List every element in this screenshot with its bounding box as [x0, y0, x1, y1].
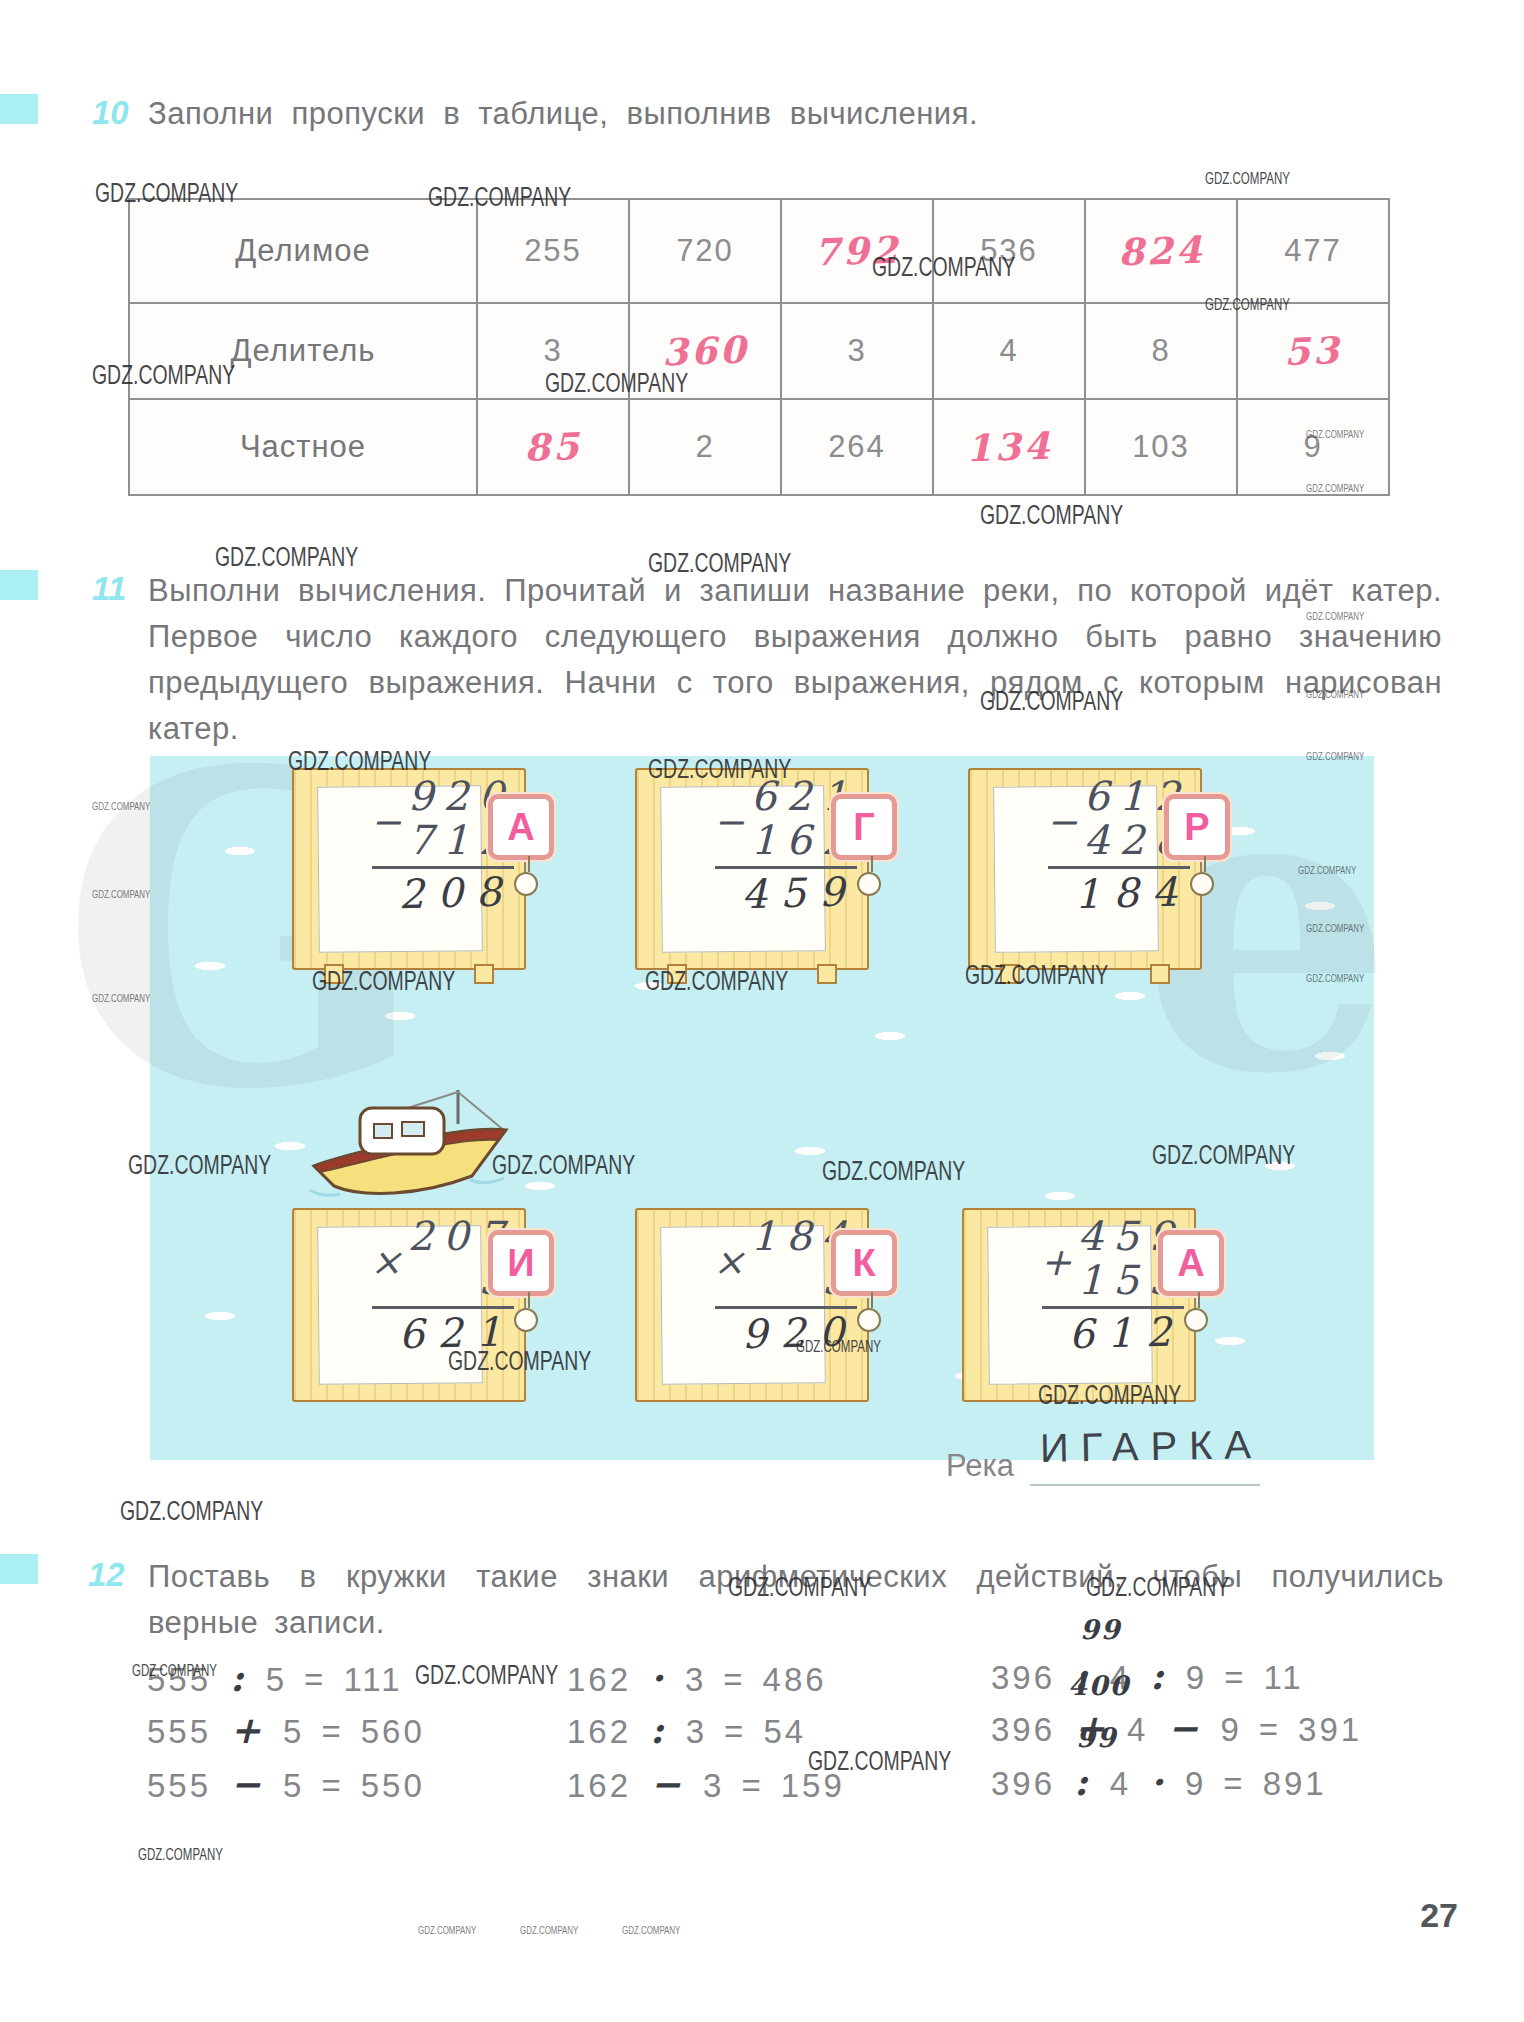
calc-card: × 184 5 920 К — [635, 1208, 869, 1402]
gdz-watermark: GDZ.COMPANY — [965, 960, 1108, 991]
gdz-watermark: GDZ.COMPANY — [120, 1496, 263, 1527]
gdz-watermark: GDZ.COMPANY — [92, 888, 150, 900]
gdz-watermark: GDZ.COMPANY — [428, 182, 571, 213]
table-cell-handwritten: 85 — [476, 398, 628, 494]
expression-row: 555+5=560 — [140, 1708, 432, 1752]
handwritten-result: 459 — [714, 869, 857, 917]
gdz-watermark: GDZ.COMPANY — [1306, 972, 1364, 984]
operator: + — [1040, 1240, 1072, 1284]
letter-tab: Г — [831, 794, 897, 860]
card-leg — [817, 964, 837, 984]
result: 54 — [763, 1713, 806, 1750]
letter-tab: Р — [1164, 794, 1230, 860]
river-illustration: G e − 920 712 208 А − 621 162 — [150, 756, 1374, 1460]
operand: 3 — [685, 1661, 706, 1698]
tab-string — [1204, 856, 1206, 872]
tab-knob — [1184, 1308, 1208, 1332]
calc-card: + 459 153 612 А — [962, 1208, 1196, 1402]
gdz-watermark: GDZ.COMPANY — [1306, 688, 1364, 700]
expression-row: 555−5=550 — [140, 1762, 432, 1806]
equals-sign: = — [321, 1767, 343, 1804]
problem-10-number: 10 — [92, 94, 129, 132]
table-cell-handwritten: 792 — [780, 200, 932, 302]
equals-sign: = — [1259, 1711, 1281, 1748]
table-cell: 720 — [628, 200, 780, 302]
gdz-watermark: GDZ.COMPANY — [622, 1924, 680, 1936]
equals-sign: = — [1223, 1765, 1245, 1802]
tab-string — [528, 856, 530, 872]
equals-sign: = — [723, 1661, 745, 1698]
operand: 9 — [1220, 1711, 1241, 1748]
gdz-watermark: GDZ.COMPANY — [1306, 750, 1364, 762]
gdz-watermark: GDZ.COMPANY — [1306, 482, 1364, 494]
river-label: Река — [946, 1448, 1014, 1484]
operand: 5 — [283, 1713, 304, 1750]
operator: − — [370, 800, 402, 844]
gdz-watermark: GDZ.COMPANY — [728, 1572, 871, 1603]
gdz-watermark: GDZ.COMPANY — [418, 1924, 476, 1936]
handwritten-result: 208 — [371, 869, 514, 917]
result: 891 — [1263, 1765, 1327, 1802]
equals-sign: = — [741, 1767, 763, 1804]
operand: 396 — [991, 1765, 1055, 1802]
card-letter: К — [852, 1242, 875, 1285]
table-row-label: Делимое — [130, 200, 476, 302]
handwritten-operator: − — [650, 1762, 684, 1806]
expression-row: 162:3=54 — [560, 1708, 813, 1752]
gdz-watermark: GDZ.COMPANY — [492, 1150, 635, 1181]
table-cell: 8 — [1084, 302, 1236, 398]
tab-string — [871, 856, 873, 872]
table-cell: 477 — [1236, 200, 1388, 302]
operand: 5 — [283, 1767, 304, 1804]
gdz-watermark: GDZ.COMPANY — [648, 548, 791, 579]
gdz-watermark: GDZ.COMPANY — [872, 252, 1015, 283]
gdz-watermark: GDZ.COMPANY — [1086, 1572, 1229, 1603]
equals-sign: = — [321, 1713, 343, 1750]
gdz-watermark: GDZ.COMPANY — [415, 1660, 558, 1691]
handwritten-operator: + — [230, 1708, 264, 1752]
card-letter: И — [507, 1242, 534, 1285]
operand: 396 — [991, 1659, 1055, 1696]
operand: 5 — [266, 1661, 287, 1698]
gdz-watermark: GDZ.COMPANY — [448, 1346, 591, 1377]
gdz-watermark: GDZ.COMPANY — [128, 1150, 271, 1181]
calc-card: − 920 712 208 А — [292, 768, 526, 970]
gdz-watermark: GDZ.COMPANY — [520, 1924, 578, 1936]
handwritten-result: 612 — [1041, 1309, 1184, 1357]
handwritten-operator: : — [1150, 1654, 1167, 1698]
operand: 162 — [567, 1661, 631, 1698]
handwritten-note: 99 — [1080, 1614, 1122, 1645]
handwritten-answer: 824 — [1117, 228, 1205, 275]
gdz-watermark: GDZ.COMPANY — [1205, 170, 1290, 188]
handwritten-answer: 134 — [965, 424, 1053, 471]
calc-card: − 621 162 459 Г — [635, 768, 869, 970]
gdz-watermark: GDZ.COMPANY — [92, 992, 150, 1004]
operand: 555 — [147, 1713, 211, 1750]
operand: 396 — [991, 1711, 1055, 1748]
problem-12-number: 12 — [88, 1556, 125, 1594]
answer-line — [1030, 1484, 1260, 1486]
table-cell-handwritten: 53 — [1236, 302, 1388, 398]
handwritten-operator: · — [1150, 1760, 1166, 1804]
gdz-watermark: GDZ.COMPANY — [1152, 1140, 1295, 1171]
table-cell: 255 — [476, 200, 628, 302]
handwritten-answer: 53 — [1283, 328, 1342, 374]
operand: 162 — [567, 1767, 631, 1804]
operator: × — [370, 1240, 402, 1284]
gdz-watermark: GDZ.COMPANY — [648, 754, 791, 785]
card-letter: Р — [1184, 806, 1209, 849]
result: 560 — [361, 1713, 425, 1750]
letter-tab: А — [488, 794, 554, 860]
card-leg — [474, 964, 494, 984]
result: 11 — [1263, 1659, 1303, 1696]
handwritten-note: 99 — [1076, 1722, 1118, 1753]
letter-tab: К — [831, 1230, 897, 1296]
gdz-watermark: GDZ.COMPANY — [980, 686, 1123, 717]
result: 550 — [361, 1767, 425, 1804]
letter-tab: И — [488, 1230, 554, 1296]
river-answer-handwritten: ИГАРКА — [1040, 1422, 1264, 1471]
gdz-watermark: GDZ.COMPANY — [808, 1746, 951, 1777]
handwritten-operator: : — [1074, 1760, 1091, 1804]
gdz-watermark: GDZ.COMPANY — [138, 1846, 223, 1864]
letter-tab: А — [1158, 1230, 1224, 1296]
operator: − — [713, 800, 745, 844]
expression-row: 99 396:4:9=11 — [984, 1654, 1311, 1698]
table-cell: 103 — [1084, 398, 1236, 494]
handwritten-operator: − — [230, 1762, 264, 1806]
card-letter: А — [1177, 1242, 1204, 1285]
gdz-watermark: GDZ.COMPANY — [1306, 610, 1364, 622]
operand: 4 — [1110, 1765, 1131, 1802]
table-row-label: Частное — [130, 398, 476, 494]
gdz-watermark: GDZ.COMPANY — [288, 746, 431, 777]
table-cell: 2 — [628, 398, 780, 494]
operand: 3 — [703, 1767, 724, 1804]
table-cell-handwritten: 134 — [932, 398, 1084, 494]
gdz-watermark: GDZ.COMPANY — [545, 368, 688, 399]
result: 486 — [763, 1661, 827, 1698]
gdz-watermark: GDZ.COMPANY — [1038, 1380, 1181, 1411]
table-cell-handwritten: 824 — [1084, 200, 1236, 302]
division-table: Делимое 255 720 792 536 824 477 Делитель… — [128, 198, 1390, 496]
operand: 555 — [147, 1767, 211, 1804]
operator: − — [1046, 800, 1078, 844]
result: 111 — [343, 1661, 402, 1698]
operator: × — [713, 1240, 745, 1284]
gdz-watermark: GDZ.COMPANY — [132, 1662, 217, 1680]
card-leg — [1150, 964, 1170, 984]
operand: 9 — [1186, 1659, 1207, 1696]
handwritten-operator: · — [650, 1656, 666, 1700]
card-letter: А — [507, 806, 534, 849]
equals-sign: = — [724, 1713, 746, 1750]
expression-row: 99 396:4·9=891 — [984, 1760, 1334, 1804]
operand: 4 — [1127, 1711, 1148, 1748]
margin-tick — [0, 1554, 38, 1584]
gdz-watermark: GDZ.COMPANY — [645, 966, 788, 997]
operand: 3 — [686, 1713, 707, 1750]
gdz-watermark: GDZ.COMPANY — [796, 1338, 881, 1356]
gdz-watermark: GDZ.COMPANY — [1306, 428, 1364, 440]
tab-string — [1198, 1292, 1200, 1308]
calc-card: − 612 428 184 Р — [968, 768, 1202, 970]
table-cell: 264 — [780, 398, 932, 494]
page-number: 27 — [1420, 1896, 1458, 1935]
table-cell: 4 — [932, 302, 1084, 398]
gdz-watermark: GDZ.COMPANY — [92, 360, 235, 391]
tab-string — [871, 1292, 873, 1308]
expression-row: 400 396+4−9=391 — [984, 1706, 1369, 1750]
gdz-watermark: GDZ.COMPANY — [822, 1156, 965, 1187]
equals-sign: = — [1224, 1659, 1246, 1696]
handwritten-result: 184 — [1047, 869, 1190, 917]
tab-string — [528, 1292, 530, 1308]
equals-sign: = — [304, 1661, 326, 1698]
card-letter: Г — [853, 806, 875, 849]
gdz-watermark: GDZ.COMPANY — [1298, 864, 1356, 876]
gdz-watermark: GDZ.COMPANY — [95, 178, 238, 209]
table-cell: 3 — [780, 302, 932, 398]
gdz-watermark: GDZ.COMPANY — [215, 542, 358, 573]
tab-knob — [514, 1308, 538, 1332]
operand: 9 — [1185, 1765, 1206, 1802]
margin-tick — [0, 570, 38, 600]
problem-10-title: Заполни пропуски в таблице, выполнив выч… — [148, 96, 978, 132]
tab-knob — [857, 1308, 881, 1332]
result: 391 — [1298, 1711, 1362, 1748]
handwritten-operator: : — [650, 1708, 667, 1752]
handwritten-note: 400 — [1068, 1670, 1130, 1701]
table-cell: 536 — [932, 200, 1084, 302]
tab-knob — [857, 872, 881, 896]
handwritten-answer: 85 — [523, 424, 582, 470]
expression-row: 162·3=486 — [560, 1656, 834, 1700]
tab-knob — [1190, 872, 1214, 896]
tab-knob — [514, 872, 538, 896]
handwritten-operator: − — [1167, 1706, 1201, 1750]
handwritten-operator: : — [230, 1656, 247, 1700]
table-cell: 9 — [1236, 398, 1388, 494]
operand: 162 — [567, 1713, 631, 1750]
gdz-watermark: GDZ.COMPANY — [1306, 922, 1364, 934]
margin-tick — [0, 94, 38, 124]
workbook-page: 10 Заполни пропуски в таблице, выполнив … — [0, 0, 1524, 2022]
gdz-watermark: GDZ.COMPANY — [1205, 296, 1290, 314]
gdz-watermark: GDZ.COMPANY — [980, 500, 1123, 531]
problem-11-text: Выполни вычисления. Прочитай и запиши на… — [148, 568, 1442, 752]
problem-11-number: 11 — [92, 570, 126, 608]
gdz-watermark: GDZ.COMPANY — [312, 966, 455, 997]
gdz-watermark: GDZ.COMPANY — [92, 800, 150, 812]
